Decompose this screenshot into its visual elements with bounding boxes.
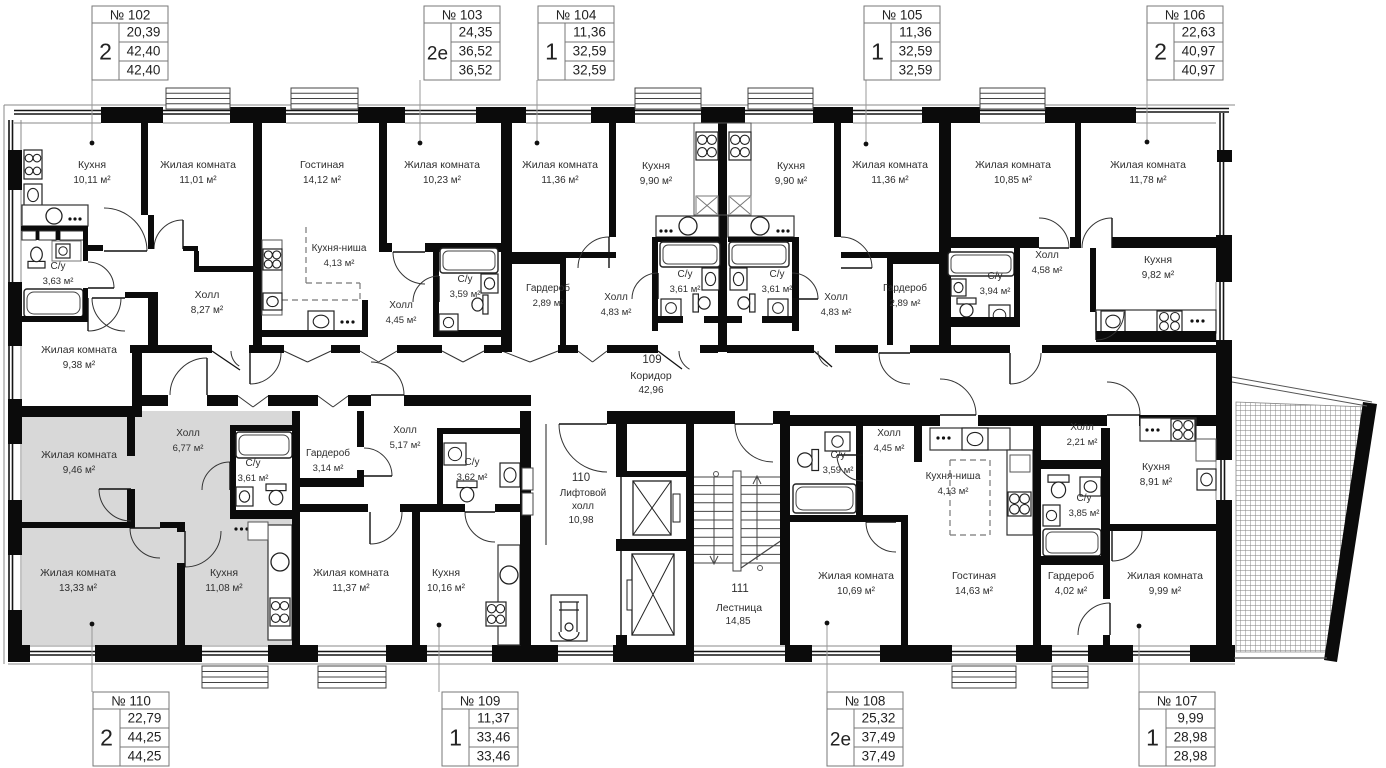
svg-text:10,85 м²: 10,85 м² xyxy=(994,175,1033,186)
svg-text:Кухня: Кухня xyxy=(1144,254,1172,266)
svg-text:4,13 м²: 4,13 м² xyxy=(324,258,355,269)
svg-text:Кухня: Кухня xyxy=(777,160,805,172)
svg-text:Кухня: Кухня xyxy=(432,567,460,579)
svg-text:Жилая комната: Жилая комната xyxy=(40,567,116,579)
svg-text:С/у: С/у xyxy=(458,274,473,285)
svg-text:44,25: 44,25 xyxy=(128,730,162,745)
svg-text:2,89 м²: 2,89 м² xyxy=(533,298,564,309)
svg-text:3,59 м²: 3,59 м² xyxy=(823,465,854,476)
svg-text:холл: холл xyxy=(572,501,594,512)
svg-text:Гардероб: Гардероб xyxy=(1048,570,1094,582)
svg-text:28,98: 28,98 xyxy=(1174,749,1208,764)
svg-text:4,45 м²: 4,45 м² xyxy=(386,315,417,326)
svg-text:Жилая комната: Жилая комната xyxy=(41,344,117,356)
svg-text:Гардероб: Гардероб xyxy=(526,282,570,294)
svg-text:3,63 м²: 3,63 м² xyxy=(43,276,74,287)
svg-text:С/у: С/у xyxy=(988,271,1003,282)
svg-text:Кухня-ниша: Кухня-ниша xyxy=(312,243,367,254)
svg-text:11,01 м²: 11,01 м² xyxy=(179,175,217,186)
svg-text:Жилая комната: Жилая комната xyxy=(852,159,928,171)
svg-text:13,33 м²: 13,33 м² xyxy=(59,583,98,594)
svg-text:Кухня-ниша: Кухня-ниша xyxy=(926,471,981,482)
svg-text:10,16 м²: 10,16 м² xyxy=(427,583,466,594)
svg-text:2: 2 xyxy=(1154,39,1167,65)
svg-text:Лифтовой: Лифтовой xyxy=(560,487,607,499)
svg-text:10,98: 10,98 xyxy=(568,515,593,526)
svg-text:3,61 м²: 3,61 м² xyxy=(238,473,269,484)
svg-text:9,46 м²: 9,46 м² xyxy=(63,465,96,476)
svg-text:Холл: Холл xyxy=(195,289,220,301)
svg-text:Жилая комната: Жилая комната xyxy=(313,567,389,579)
svg-text:Холл: Холл xyxy=(1070,422,1094,433)
svg-text:С/у: С/у xyxy=(1077,493,1092,504)
svg-text:3,61 м²: 3,61 м² xyxy=(670,284,701,295)
svg-text:2е: 2е xyxy=(830,730,851,751)
svg-text:№ 110: № 110 xyxy=(111,694,151,709)
svg-text:3,62 м²: 3,62 м² xyxy=(457,472,488,483)
svg-text:Жилая комната: Жилая комната xyxy=(160,159,236,171)
svg-text:Холл: Холл xyxy=(877,428,901,439)
svg-text:Коридор: Коридор xyxy=(630,370,672,382)
svg-text:32,59: 32,59 xyxy=(899,44,933,59)
svg-text:9,38 м²: 9,38 м² xyxy=(63,360,96,371)
svg-text:8,91 м²: 8,91 м² xyxy=(1140,477,1173,488)
svg-text:20,39: 20,39 xyxy=(127,25,161,40)
svg-text:10,11 м²: 10,11 м² xyxy=(73,175,111,186)
svg-text:5,17 м²: 5,17 м² xyxy=(390,440,421,451)
svg-text:С/у: С/у xyxy=(770,269,785,280)
svg-text:№ 103: № 103 xyxy=(442,8,483,23)
svg-text:33,46: 33,46 xyxy=(477,730,511,745)
svg-text:10,23 м²: 10,23 м² xyxy=(423,175,462,186)
svg-text:№ 109: № 109 xyxy=(460,694,501,709)
svg-text:Холл: Холл xyxy=(176,428,200,439)
svg-text:36,52: 36,52 xyxy=(459,63,493,78)
svg-text:42,96: 42,96 xyxy=(638,385,663,396)
svg-text:110: 110 xyxy=(572,472,590,484)
svg-text:Холл: Холл xyxy=(389,300,413,311)
svg-text:С/у: С/у xyxy=(51,261,66,272)
svg-text:40,97: 40,97 xyxy=(1182,44,1216,59)
svg-text:Гардероб: Гардероб xyxy=(883,282,927,294)
svg-text:4,83 м²: 4,83 м² xyxy=(821,307,852,318)
svg-text:111: 111 xyxy=(731,583,748,595)
svg-text:32,59: 32,59 xyxy=(573,63,607,78)
svg-text:22,79: 22,79 xyxy=(128,711,162,726)
svg-text:№ 104: № 104 xyxy=(556,8,597,23)
svg-text:4,83 м²: 4,83 м² xyxy=(601,307,632,318)
svg-text:3,61 м²: 3,61 м² xyxy=(762,284,793,295)
svg-text:№ 108: № 108 xyxy=(845,694,886,709)
svg-text:9,90 м²: 9,90 м² xyxy=(640,176,673,187)
svg-text:2е: 2е xyxy=(427,44,448,65)
svg-text:Холл: Холл xyxy=(1035,250,1059,261)
svg-text:Жилая комната: Жилая комната xyxy=(522,159,598,171)
svg-text:Жилая комната: Жилая комната xyxy=(41,449,117,461)
svg-text:9,82 м²: 9,82 м² xyxy=(1142,270,1175,281)
svg-text:6,77 м²: 6,77 м² xyxy=(173,443,204,454)
svg-text:42,40: 42,40 xyxy=(127,63,161,78)
svg-text:Кухня: Кухня xyxy=(642,160,670,172)
svg-text:32,59: 32,59 xyxy=(899,63,933,78)
svg-text:11,36 м²: 11,36 м² xyxy=(871,175,909,186)
svg-text:8,27 м²: 8,27 м² xyxy=(191,305,224,316)
svg-text:Холл: Холл xyxy=(393,425,417,436)
svg-text:2: 2 xyxy=(99,39,112,65)
svg-text:22,63: 22,63 xyxy=(1182,25,1216,40)
svg-text:3,59 м²: 3,59 м² xyxy=(450,289,481,300)
svg-text:14,63 м²: 14,63 м² xyxy=(955,586,994,597)
svg-text:3,85 м²: 3,85 м² xyxy=(1069,508,1100,519)
svg-text:3,14 м²: 3,14 м² xyxy=(313,463,344,474)
svg-text:11,08 м²: 11,08 м² xyxy=(205,583,243,594)
svg-text:2,89 м²: 2,89 м² xyxy=(890,298,921,309)
svg-text:9,90 м²: 9,90 м² xyxy=(775,176,808,187)
svg-text:С/у: С/у xyxy=(678,269,693,280)
svg-text:10,69 м²: 10,69 м² xyxy=(837,586,876,597)
svg-text:4,13 м²: 4,13 м² xyxy=(938,486,969,497)
svg-text:4,02 м²: 4,02 м² xyxy=(1055,586,1088,597)
svg-text:Гостиная: Гостиная xyxy=(300,159,344,171)
svg-text:11,78 м²: 11,78 м² xyxy=(1129,175,1167,186)
svg-text:№ 107: № 107 xyxy=(1157,694,1198,709)
svg-text:37,49: 37,49 xyxy=(862,749,896,764)
svg-text:Жилая комната: Жилая комната xyxy=(975,159,1051,171)
svg-text:№ 105: № 105 xyxy=(882,8,923,23)
svg-text:№ 102: № 102 xyxy=(110,8,151,23)
svg-text:2,21 м²: 2,21 м² xyxy=(1067,437,1098,448)
svg-text:11,36: 11,36 xyxy=(573,25,606,40)
svg-text:32,59: 32,59 xyxy=(573,44,607,59)
svg-text:Холл: Холл xyxy=(604,292,628,303)
svg-text:С/у: С/у xyxy=(246,458,261,469)
svg-text:Кухня: Кухня xyxy=(210,567,238,579)
svg-text:Жилая комната: Жилая комната xyxy=(404,159,480,171)
svg-text:С/у: С/у xyxy=(465,457,480,468)
svg-text:Жилая комната: Жилая комната xyxy=(1127,570,1203,582)
svg-text:9,99 м²: 9,99 м² xyxy=(1149,586,1182,597)
svg-text:36,52: 36,52 xyxy=(459,44,493,59)
svg-text:25,32: 25,32 xyxy=(862,711,896,726)
svg-text:44,25: 44,25 xyxy=(128,749,162,764)
svg-text:42,40: 42,40 xyxy=(127,44,161,59)
svg-text:1: 1 xyxy=(545,39,558,65)
svg-text:Гостиная: Гостиная xyxy=(952,570,996,582)
svg-text:1: 1 xyxy=(871,39,884,65)
svg-text:1: 1 xyxy=(449,725,462,751)
svg-text:Жилая комната: Жилая комната xyxy=(1110,159,1186,171)
svg-text:Холл: Холл xyxy=(824,292,848,303)
svg-text:11,37: 11,37 xyxy=(477,711,510,726)
svg-text:2: 2 xyxy=(100,725,113,751)
svg-text:Кухня: Кухня xyxy=(78,159,106,171)
svg-text:Лестница: Лестница xyxy=(716,602,762,614)
svg-text:14,85: 14,85 xyxy=(725,616,750,627)
svg-text:109: 109 xyxy=(642,354,661,366)
svg-text:24,35: 24,35 xyxy=(459,25,493,40)
svg-text:С/у: С/у xyxy=(831,450,846,461)
svg-text:11,36 м²: 11,36 м² xyxy=(541,175,579,186)
svg-text:№ 106: № 106 xyxy=(1165,8,1206,23)
svg-text:1: 1 xyxy=(1146,725,1159,751)
svg-text:11,37 м²: 11,37 м² xyxy=(332,583,370,594)
svg-text:33,46: 33,46 xyxy=(477,749,511,764)
svg-text:28,98: 28,98 xyxy=(1174,730,1208,745)
svg-text:Гардероб: Гардероб xyxy=(306,447,350,459)
svg-text:4,45 м²: 4,45 м² xyxy=(874,443,905,454)
svg-text:14,12 м²: 14,12 м² xyxy=(303,175,342,186)
svg-text:9,99: 9,99 xyxy=(1177,711,1203,726)
svg-text:Жилая комната: Жилая комната xyxy=(818,570,894,582)
svg-text:11,36: 11,36 xyxy=(899,25,932,40)
svg-text:40,97: 40,97 xyxy=(1182,63,1216,78)
svg-text:Кухня: Кухня xyxy=(1142,461,1170,473)
svg-text:3,94 м²: 3,94 м² xyxy=(980,286,1011,297)
svg-text:4,58 м²: 4,58 м² xyxy=(1032,265,1063,276)
svg-text:37,49: 37,49 xyxy=(862,730,896,745)
